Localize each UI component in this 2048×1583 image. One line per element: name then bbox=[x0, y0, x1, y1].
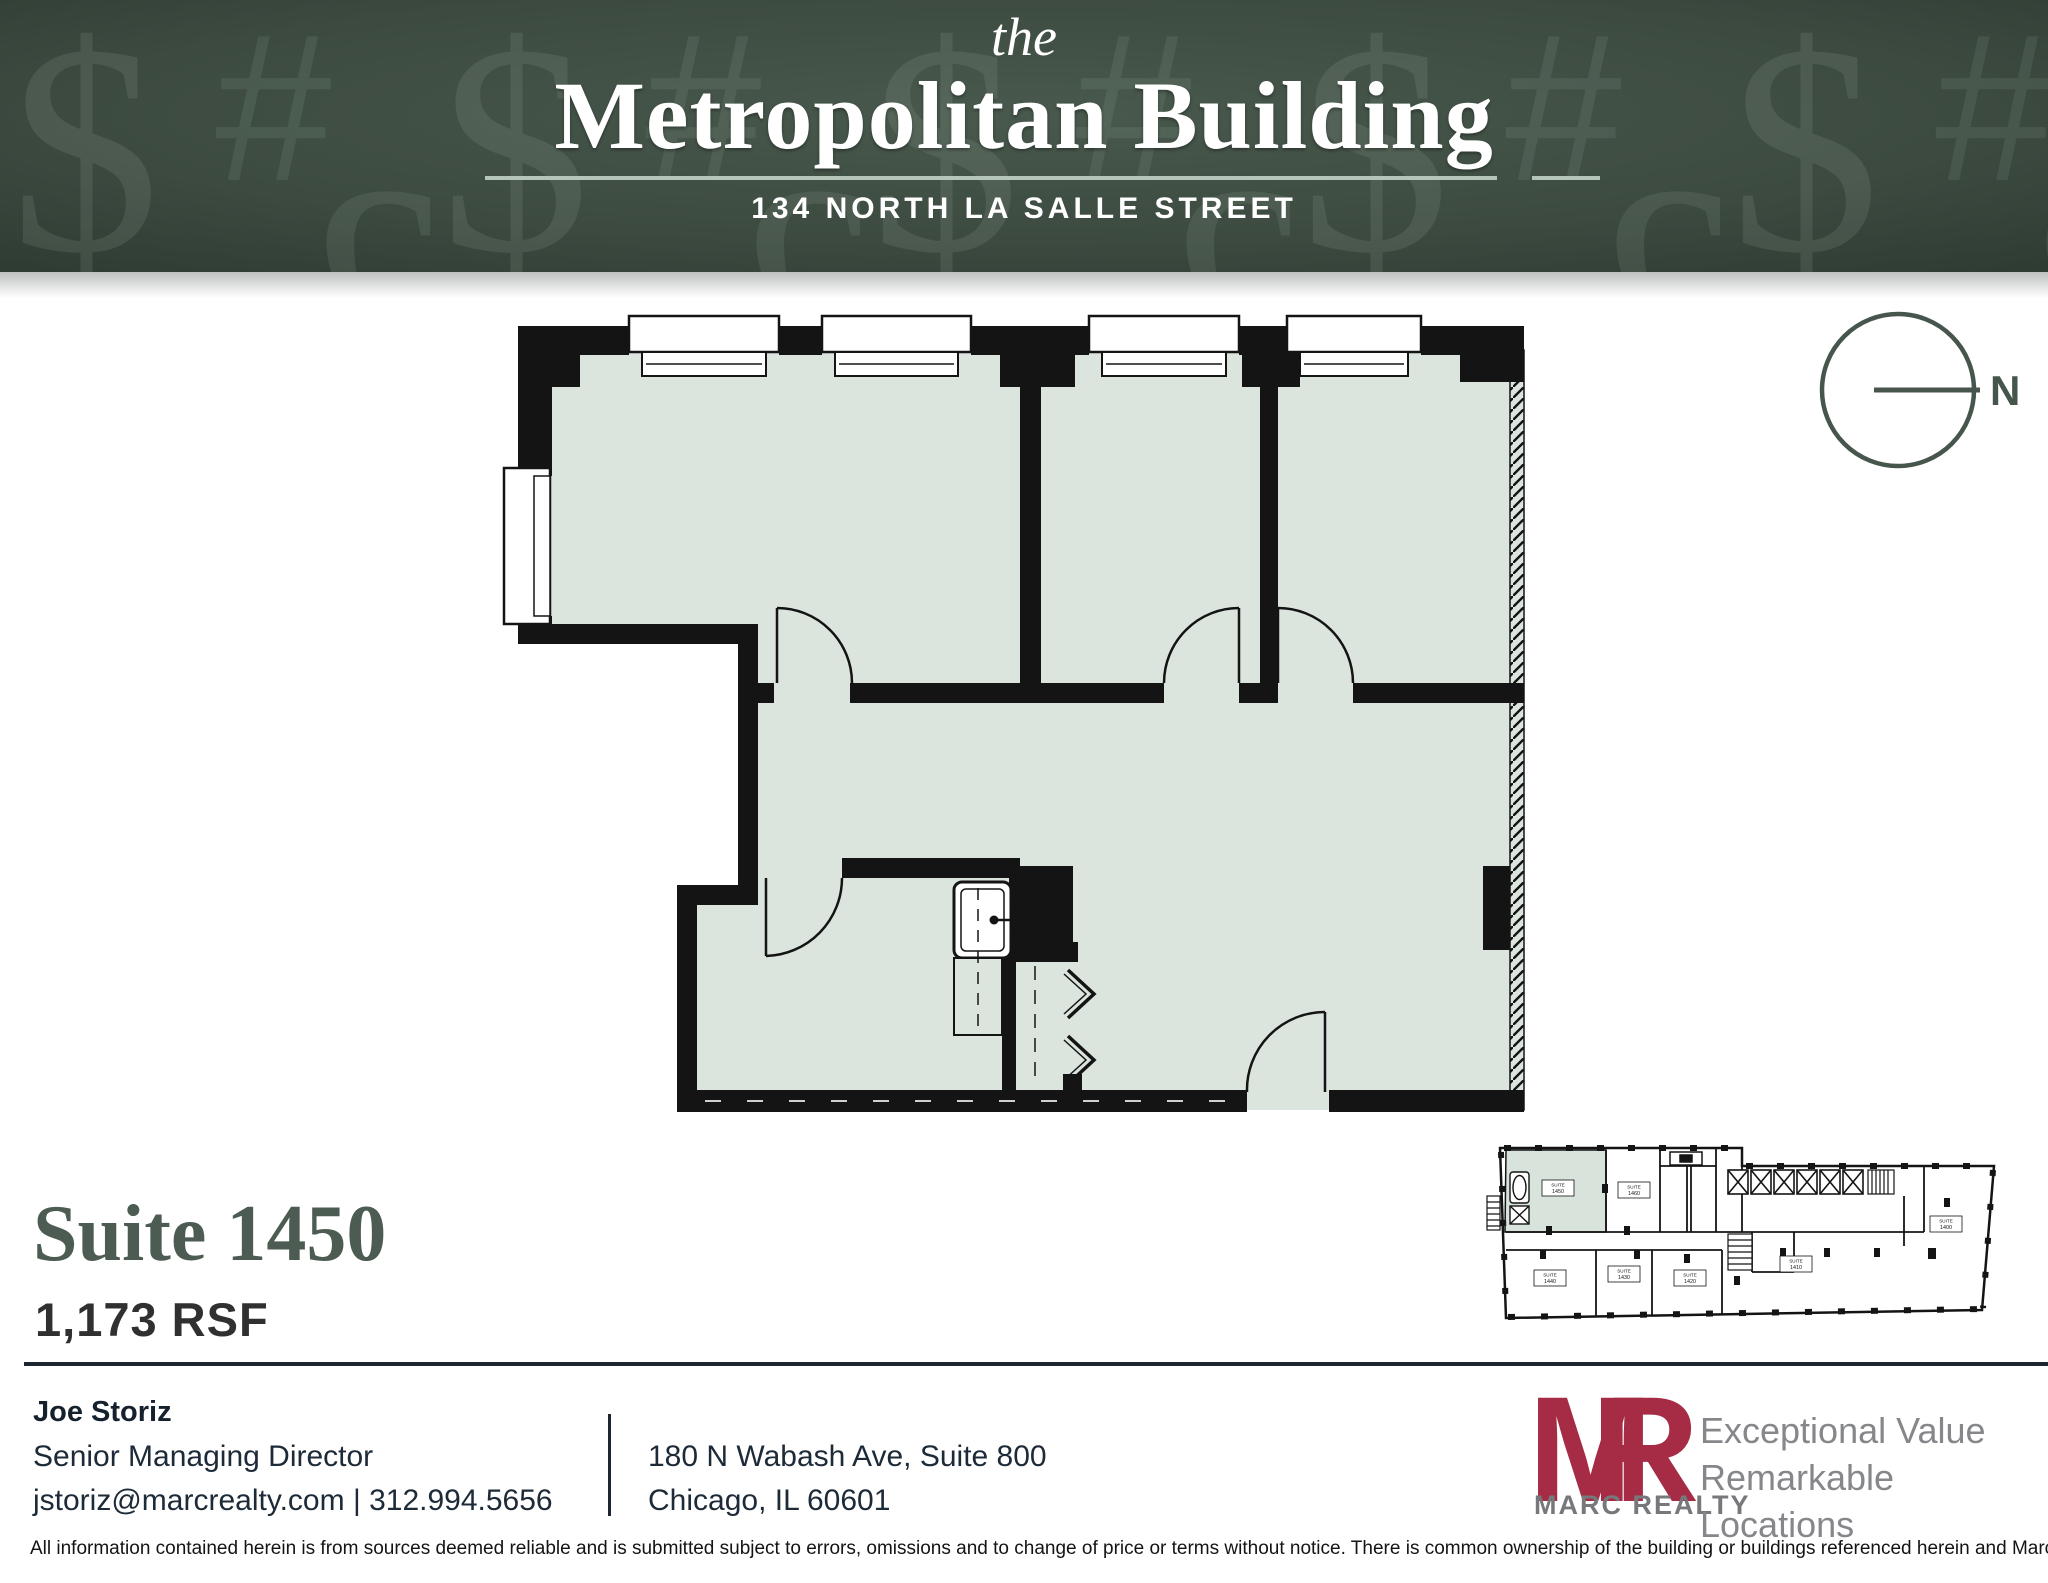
svg-text:1460: 1460 bbox=[1628, 1191, 1640, 1197]
brand-tagline: Exceptional Value Remarkable Locations bbox=[1700, 1408, 2048, 1548]
header-drop-shadow bbox=[0, 272, 2048, 298]
demising-wall-hatched bbox=[1510, 350, 1524, 1110]
stair bbox=[1868, 1170, 1894, 1194]
suite-area: 1,173 RSF bbox=[35, 1292, 269, 1347]
compass-label: N bbox=[1990, 367, 2020, 414]
suite-label: SUITE 1430 bbox=[1608, 1266, 1640, 1282]
svg-text:SUITE: SUITE bbox=[1789, 1259, 1803, 1264]
svg-text:1440: 1440 bbox=[1544, 1279, 1556, 1285]
title-underline-right bbox=[1532, 176, 1600, 180]
disclaimer-text: All information contained herein is from… bbox=[30, 1538, 2030, 1560]
svg-text:SUITE: SUITE bbox=[1543, 1273, 1557, 1278]
svg-text:SUITE: SUITE bbox=[1617, 1269, 1631, 1274]
building-title: Metropolitan Building bbox=[554, 68, 1493, 164]
svg-text:1400: 1400 bbox=[1940, 1225, 1952, 1231]
elevator bbox=[1728, 1170, 1748, 1194]
elevator bbox=[1797, 1170, 1817, 1194]
svg-text:SUITE: SUITE bbox=[1627, 1185, 1641, 1190]
suite-label: SUITE 1440 bbox=[1534, 1270, 1566, 1286]
svg-text:SUITE: SUITE bbox=[1939, 1219, 1953, 1224]
office-address-line2: Chicago, IL 60601 bbox=[648, 1484, 890, 1518]
contact-title: Senior Managing Director bbox=[33, 1440, 373, 1474]
contact-email-phone: jstoriz@marcrealty.com | 312.994.5656 bbox=[33, 1484, 553, 1518]
contact-phone[interactable]: 312.994.5656 bbox=[369, 1484, 553, 1517]
svg-text:1450: 1450 bbox=[1552, 1189, 1564, 1195]
title-underline-left bbox=[485, 176, 1497, 180]
header-pre-title: the bbox=[991, 10, 1057, 64]
suite-label: SUITE 1450 bbox=[1542, 1180, 1574, 1196]
header-banner: $ # £ the Metropolitan Building 134 NORT… bbox=[0, 0, 2048, 272]
window bbox=[1287, 316, 1421, 376]
svg-text:1410: 1410 bbox=[1790, 1265, 1802, 1271]
contact-separator: | bbox=[353, 1484, 369, 1517]
window bbox=[822, 316, 971, 376]
svg-text:1420: 1420 bbox=[1684, 1279, 1696, 1285]
window bbox=[1089, 316, 1239, 376]
suite-label: SUITE 1460 bbox=[1618, 1182, 1650, 1198]
tagline-line2: Remarkable Locations bbox=[1700, 1455, 2048, 1549]
elevator bbox=[1820, 1170, 1840, 1194]
svg-text:SUITE: SUITE bbox=[1683, 1273, 1697, 1278]
suite-label: SUITE 1410 bbox=[1780, 1256, 1812, 1272]
suite-label: SUITE 1400 bbox=[1930, 1216, 1962, 1232]
north-arrow: N bbox=[1812, 306, 2048, 486]
elevator bbox=[1774, 1170, 1794, 1194]
suite-label: SUITE 1420 bbox=[1674, 1270, 1706, 1286]
keyplan-core-box bbox=[1670, 1152, 1702, 1165]
west-window bbox=[504, 468, 550, 624]
contact-name: Joe Storiz bbox=[33, 1396, 172, 1429]
suite-title: Suite 1450 bbox=[33, 1194, 386, 1274]
suite-floorplan bbox=[490, 310, 1560, 1120]
building-address: 134 NORTH LA SALLE STREET bbox=[751, 192, 1297, 226]
keyplan-fixtures bbox=[1510, 1172, 1529, 1224]
contact-email[interactable]: jstoriz@marcrealty.com bbox=[33, 1484, 345, 1517]
window bbox=[629, 316, 779, 376]
svg-text:1430: 1430 bbox=[1618, 1275, 1630, 1281]
elevator bbox=[1751, 1170, 1771, 1194]
elevator bbox=[1843, 1170, 1863, 1194]
footer-rule bbox=[24, 1362, 2048, 1366]
contact-divider bbox=[608, 1414, 611, 1516]
stair bbox=[1728, 1234, 1752, 1270]
stair bbox=[1487, 1196, 1500, 1230]
floor-key-plan: SUITE 1450 SUITE 1460 SUITE 1440 SUITE 1… bbox=[1484, 1136, 2032, 1356]
svg-text:SUITE: SUITE bbox=[1551, 1183, 1565, 1188]
office-address-line1: 180 N Wabash Ave, Suite 800 bbox=[648, 1440, 1047, 1474]
tagline-line1: Exceptional Value bbox=[1700, 1408, 2048, 1455]
